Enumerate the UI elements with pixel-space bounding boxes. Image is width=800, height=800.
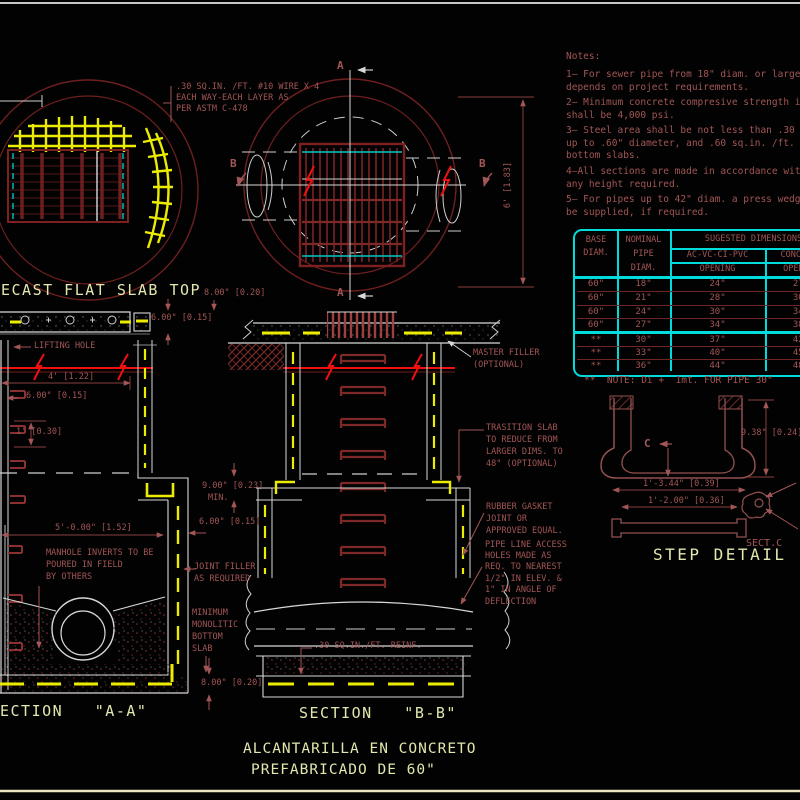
cell: 45" [765, 348, 800, 358]
cell: 48" [765, 361, 800, 371]
monolithic-line-2: MONOLITIC [192, 620, 238, 630]
table-row: 60"24"30"34" [575, 307, 800, 317]
cell: 40" [670, 348, 765, 358]
manhole-note-line-1: MANHOLE INVERTS TO BE [46, 548, 153, 558]
note-4-line-2: any height required. [566, 179, 680, 190]
cell: ** [575, 348, 617, 358]
pipe-access-line-4: 1/2" IN ELEV. & [485, 574, 562, 584]
table-gridline [575, 331, 800, 334]
cell: 33" [617, 348, 670, 358]
table-row: **33"40"45" [575, 348, 800, 358]
cell: 38" [765, 320, 800, 330]
cell: 60" [575, 293, 617, 303]
notes-heading: Notes: [566, 51, 600, 62]
note-2-line-1: 2— Minimum concrete compresive strength … [566, 97, 800, 108]
drawing-title-line-1: ALCANTARILLA EN CONCRETO [243, 741, 477, 757]
table-header-base: BASE [575, 235, 617, 245]
note-3-line-3: bottom slabs. [566, 150, 640, 161]
section-marker-a-top: A [337, 59, 344, 72]
table-row-separator [577, 359, 800, 360]
cell: 28" [670, 293, 765, 303]
master-filler-line-2: (OPTIONAL) [473, 360, 524, 370]
flat-slab-plan-view [0, 80, 198, 300]
rubber-gasket-line-2: JOINT OR [486, 514, 527, 524]
note-3-line-2: up to .60" diameter, and .60 sq.in. /ft.… [566, 138, 800, 149]
monolithic-line-4: SLAB [192, 644, 212, 654]
lifting-hole-label: LIFTING HOLE [34, 341, 95, 351]
plan-height-dim: 6' [1.83] [503, 150, 513, 220]
cell: 30" [617, 335, 670, 345]
dim-938: 9.38" [0.24] [741, 428, 800, 438]
table-header-sugested: SUGESTED DIMENSIONS [670, 234, 800, 244]
cell: 21" [617, 293, 670, 303]
manhole-note-line-2: POURED IN FIELD [46, 560, 123, 570]
section-b-b [228, 312, 510, 697]
dim-1200: 1'-2.00" [0.36] [648, 496, 725, 506]
note-4-line-1: 4—All sections are made in accordance wi… [566, 166, 800, 177]
pipe-access-line-6: DEFLECTION [485, 597, 536, 607]
dim-8in-top: 8.00" [0.20] [204, 288, 265, 298]
dim-4ft: 4' [1.22] [48, 372, 94, 382]
joint-filler-line-1: JOINT FILLER [194, 562, 255, 572]
note-5-line-2: be supplied, if required. [566, 207, 709, 218]
cad-canvas: { "colors": { "background": "#020202", "… [0, 0, 800, 800]
cell: 34" [670, 320, 765, 330]
table-row-separator [577, 305, 800, 306]
cell: 36" [617, 361, 670, 371]
cell: 37" [670, 335, 765, 345]
cell: 18" [617, 279, 670, 289]
wire-note-line-1: .30 SQ.IN. /FT. #10 WIRE X 4 [176, 82, 319, 92]
pipe-access-line-2: HOLES MADE AS [485, 551, 552, 561]
drawing-title-line-2: PREFABRICADO DE 60" [251, 762, 436, 778]
manhole-note-line-3: BY OTHERS [46, 572, 92, 582]
dim-1ft: 1' [0.30] [16, 427, 62, 437]
table-row: 60"27"34"38" [575, 320, 800, 330]
reinf-note: .30 SQ.IN./FT. REINF. [314, 641, 421, 651]
dim-1344: 1'-3.44" [0.39] [643, 479, 720, 489]
section-marker-b-left: B [230, 157, 237, 170]
section-b-title: SECTION "B-B" [299, 704, 457, 722]
section-marker-c: C [644, 437, 651, 450]
note-3-line-1: 3— Steel area shall be not less than .30… [566, 125, 800, 136]
note-1-line-1: 1— For sewer pipe from 18" diam. or larg… [566, 69, 800, 80]
transition-line-1: TRASITION SLAB [486, 423, 558, 433]
table-row: 60"18"24"27" [575, 279, 800, 289]
table-header-pipe: PIPE [617, 249, 670, 259]
cell: 30" [670, 307, 765, 317]
cell: 60" [575, 307, 617, 317]
table-footnote: ** NOTE: Di + 1mt. FOR PIPE 30" [584, 375, 773, 386]
pipe-access-line-5: 1" IN ANGLE OF [485, 585, 557, 595]
table-row-separator [577, 291, 800, 292]
manhole-plan-view [236, 70, 534, 300]
dim-8in-bottom: 8.00" [0.20] [201, 678, 262, 688]
transition-line-2: TO REDUCE FROM [486, 435, 558, 445]
joint-filler-line-2: AS REQUIRED [194, 574, 250, 584]
dim-6in-left: 6.00" [0.15] [26, 391, 87, 401]
dim-6in-top: 6.00" [0.15] [151, 313, 212, 323]
table-header-opening-1: OPENING [670, 264, 765, 274]
pipe-access-line-3: REQ. TO NEAREST [485, 562, 562, 572]
cell: 34" [765, 307, 800, 317]
table-row: **36"44"48" [575, 361, 800, 371]
table-header-acvc: AC-VC-CI-PVC [670, 250, 765, 260]
rubber-gasket-line-1: RUBBER GASKET [486, 502, 553, 512]
pipe-access-line-1: PIPE LINE ACCESS [485, 540, 567, 550]
cell: ** [575, 335, 617, 345]
table-row: **30"37"42" [575, 335, 800, 345]
dim-5ft: 5'-0.00" [1.52] [55, 523, 132, 533]
section-marker-a-bottom: A [337, 286, 344, 299]
monolithic-line-3: BOTTOM [192, 632, 223, 642]
cell: 30" [765, 293, 800, 303]
table-header-base-2: DIAM. [575, 248, 617, 258]
cell: ** [575, 361, 617, 371]
table-header-opening-2: OPENING [765, 264, 800, 274]
table-row-separator [577, 346, 800, 347]
dim-6in-right: 6.00" [0.15] [199, 517, 260, 527]
cell: 24" [670, 279, 765, 289]
cell: 24" [617, 307, 670, 317]
dimensions-table: BASE DIAM. NOMINAL PIPE DIAM. SUGESTED D… [573, 229, 800, 377]
table-header-nominal: NOMINAL [617, 235, 670, 245]
table-row: 60"21"28"30" [575, 293, 800, 303]
drawing-linework [0, 0, 800, 800]
master-filler-line-1: MASTER FILLER [473, 348, 540, 358]
cell: 60" [575, 279, 617, 289]
note-2-line-2: shall be 4,000 psi. [566, 110, 675, 121]
cell: 44" [670, 361, 765, 371]
step-detail-title: STEP DETAIL [653, 545, 786, 564]
section-a-title: ECTION "A-A" [0, 702, 147, 720]
wire-note-line-3: PER ASTM C-478 [176, 104, 248, 114]
cell: 60" [575, 320, 617, 330]
transition-line-4: 48" (OPTIONAL) [486, 459, 558, 469]
section-marker-b-right: B [479, 157, 486, 170]
cell: 27" [617, 320, 670, 330]
transition-line-3: LARGER DIMS. TO [486, 447, 563, 457]
dim-9in-min: MIN. [208, 493, 228, 503]
table-header-diam: DIAM. [617, 263, 670, 273]
rubber-gasket-line-3: APPROVED EQUAL. [486, 526, 563, 536]
cell: 27" [765, 279, 800, 289]
note-1-line-2: depends on project requirements. [566, 82, 749, 93]
monolithic-line-1: MINIMUM [192, 608, 228, 618]
table-header-concrete: CONCRETE [765, 250, 800, 260]
dim-9in: 9.00" [0.23] [202, 481, 263, 491]
flat-slab-title: ECAST FLAT SLAB TOP [1, 281, 201, 299]
cell: 42" [765, 335, 800, 345]
step-detail-view [601, 396, 798, 537]
table-row-separator [577, 318, 800, 319]
wire-note-line-2: EACH WAY-EACH LAYER AS [176, 93, 289, 103]
note-5-line-1: 5— For pipes up to 42" diam. a press wed… [566, 194, 800, 205]
